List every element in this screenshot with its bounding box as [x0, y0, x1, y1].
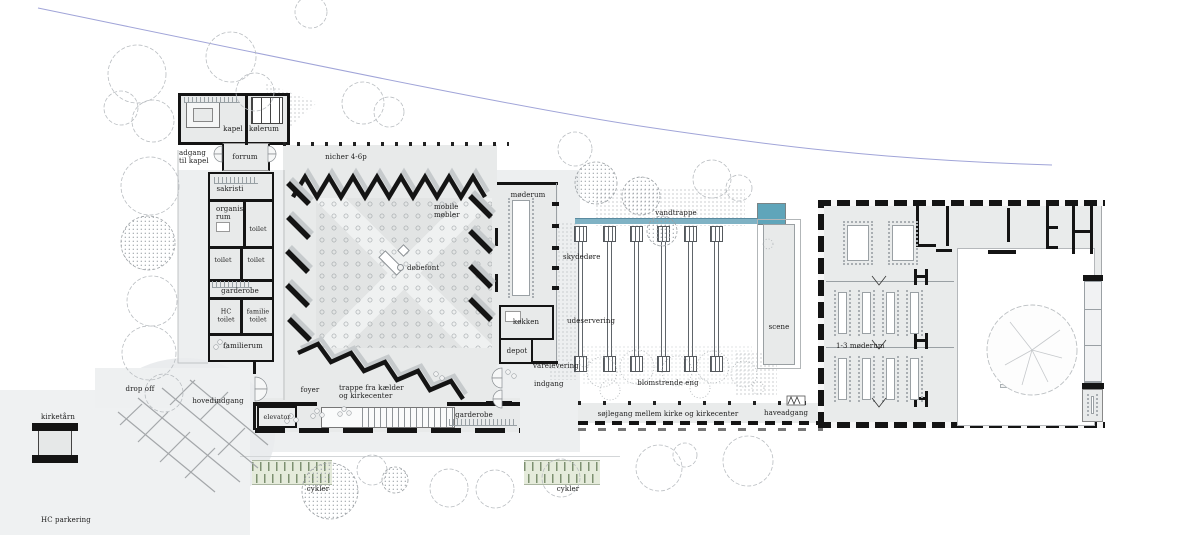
label-blomstrende-eng: blomstrende eng [637, 379, 698, 387]
label-familie-toilet: familie toilet [247, 308, 270, 323]
label-nicher: nicher 4-6p [325, 153, 367, 161]
courtyard-gallery [1084, 281, 1102, 383]
wall [1007, 208, 1010, 242]
label-1-3-moederum: 1-3 møderum [836, 342, 885, 350]
wall [447, 402, 520, 406]
bike-rack [252, 460, 332, 485]
doebefont-circle [397, 264, 404, 271]
label-koelerum: kølerum [249, 125, 279, 133]
pergola-column [574, 226, 587, 242]
courtyard-bench [1000, 384, 1048, 388]
courtyard [957, 248, 1095, 426]
sliding-door-post [552, 224, 559, 228]
moederum-long-table [508, 198, 534, 298]
door-frame [914, 275, 928, 278]
organist-desk [216, 222, 230, 232]
pergola-column [603, 356, 616, 372]
label-foyer: foyer [301, 386, 320, 394]
sliding-door-post [552, 266, 559, 270]
wall [1072, 230, 1093, 233]
site-plan-drawing: kapel kølerum forrum adgang til kapel sa… [0, 0, 1200, 535]
meeting-table-8 [843, 221, 873, 265]
bike-rack [524, 460, 600, 485]
scene-stage [763, 224, 795, 365]
wall [916, 244, 936, 247]
long-table [858, 356, 875, 402]
wall [240, 297, 243, 333]
wall [936, 249, 952, 252]
label-moederum: møderum [511, 191, 546, 199]
pergola-column [630, 226, 643, 242]
label-scene: scene [769, 323, 790, 331]
wall [255, 402, 317, 406]
wall [497, 182, 558, 185]
label-toilet-2: toilet [214, 257, 231, 265]
long-table [882, 290, 899, 336]
pergola-column [684, 226, 697, 242]
label-haveadgang: haveadgang [764, 409, 808, 417]
pergola-column [657, 226, 670, 242]
glass-wall-line [556, 183, 557, 365]
label-familierum: familierum [223, 342, 263, 350]
label-organist-rum: organist rum [216, 205, 246, 222]
label-forrum: forrum [232, 153, 257, 161]
label-garderobe: garderobe [221, 287, 259, 295]
wall [245, 93, 248, 145]
koelerum-racks [251, 97, 283, 124]
label-kapel: kapel [223, 125, 243, 133]
label-elevator: elevator [264, 414, 291, 422]
pergola-wall [578, 226, 583, 372]
label-udeservering: udeservering [567, 317, 615, 325]
wall [495, 274, 498, 292]
wall [1083, 275, 1103, 281]
wall [240, 246, 243, 279]
label-cykler-2: cykler [557, 485, 579, 493]
soejlegang-columns-north [578, 401, 823, 405]
pergola-column [710, 356, 723, 372]
sliding-door-post [552, 286, 559, 290]
wall [1046, 226, 1058, 229]
long-table [906, 290, 923, 336]
catafalque-symbol-inner [193, 108, 213, 122]
door-frame [914, 339, 928, 342]
label-hc-parkering: HC parkering [41, 516, 91, 524]
label-skydedoere: skydedøre [563, 253, 601, 261]
long-table [834, 356, 851, 402]
church-seating-area [316, 198, 492, 348]
label-cykler-1: cykler [307, 485, 329, 493]
pergola-column [630, 356, 643, 372]
room-divider-line [826, 281, 954, 282]
soejlegang-shadow [578, 428, 823, 431]
wall [1046, 246, 1058, 249]
label-toilet-1: toilet [249, 226, 266, 234]
path-edge-line [240, 456, 620, 457]
church-roofline-ticks [283, 142, 509, 146]
label-adgang-til-kapel: adgang til kapel [179, 149, 209, 166]
wall [208, 333, 274, 336]
label-sakristi: sakristi [216, 185, 243, 193]
pergola-wall [634, 226, 639, 372]
long-table [834, 290, 851, 336]
pergola-column [603, 226, 616, 242]
sliding-door-post [552, 202, 559, 206]
wall [253, 362, 256, 374]
meeting-table-8 [888, 221, 918, 265]
label-kirketaarn: kirketårn [41, 413, 75, 421]
stair-from-basement [321, 407, 455, 428]
label-trappe: trappe fra kælder og kirkecenter [339, 384, 404, 401]
label-varelevering: varelevering [533, 362, 579, 370]
sliding-door-post [552, 246, 559, 250]
label-doebefont: døbefont [407, 264, 439, 272]
wall [495, 228, 498, 246]
long-table [858, 290, 875, 336]
wall [1082, 383, 1104, 389]
wall [988, 250, 1016, 254]
label-soejlegang: søjlegang mellem kirke og kirkecenter [598, 410, 739, 418]
long-table [906, 356, 923, 402]
kirketaarn-wall-north [32, 423, 78, 431]
pergola-column [710, 226, 723, 242]
soejlegang-wall-south [578, 421, 823, 425]
vandtrappe-bar [575, 218, 758, 224]
kirketaarn-body [38, 431, 72, 455]
wall [253, 402, 256, 430]
pergola-column [684, 356, 697, 372]
pergola-column [657, 356, 670, 372]
kapel-window-hatch [184, 97, 240, 103]
garderobe-foyer-hatch [449, 419, 517, 426]
label-hc-toilet: HC toilet [217, 308, 234, 323]
label-mobile-moebler: mobile møbler [434, 203, 460, 220]
pergola-wall [607, 226, 612, 372]
label-indgang: indgang [534, 380, 564, 388]
garden-room-table [1087, 394, 1098, 416]
sakristi-counter [214, 177, 258, 184]
foyer-south-wall [255, 428, 520, 433]
kirkecenter-wall-west [818, 200, 824, 428]
pergola-wall [714, 226, 719, 372]
long-table [882, 356, 899, 402]
kirketaarn-wall-south [32, 455, 78, 463]
pergola-wall [661, 226, 666, 372]
kirkecenter-wall-north [818, 200, 1105, 206]
label-garderobe-foyer: garderobe [455, 411, 493, 419]
wall [946, 206, 949, 246]
pergola-wall [688, 226, 693, 372]
label-toilet-3: toilet [247, 257, 264, 265]
label-koekken: køkken [513, 318, 539, 326]
label-depot: depot [507, 347, 528, 355]
wall [208, 199, 274, 202]
label-hovedindgang: hovedindgang [192, 397, 243, 405]
label-vandtrappe: vandtrappe [655, 209, 697, 217]
label-drop-off: drop off [126, 385, 155, 393]
